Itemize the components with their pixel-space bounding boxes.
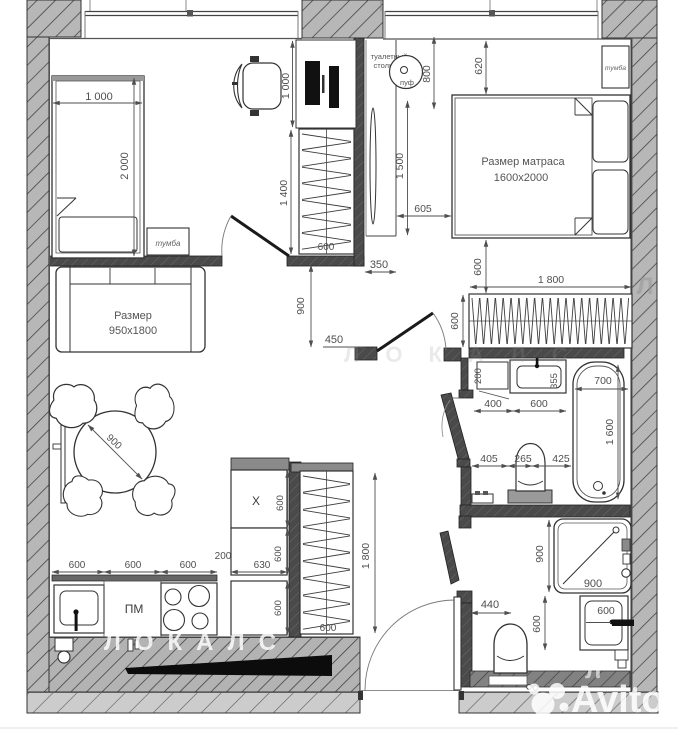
svg-text:X: X	[252, 494, 260, 508]
svg-text:425: 425	[552, 453, 570, 465]
svg-text:1 000: 1 000	[85, 91, 113, 103]
svg-text:620: 620	[473, 57, 485, 75]
svg-text:440: 440	[481, 599, 499, 611]
svg-text:Avito: Avito	[571, 679, 665, 721]
svg-text:1 000: 1 000	[280, 73, 292, 99]
svg-text:1 500: 1 500	[394, 153, 406, 179]
svg-text:600: 600	[449, 312, 461, 330]
svg-text:600: 600	[273, 600, 284, 616]
svg-text:600: 600	[530, 398, 548, 410]
svg-text:600: 600	[320, 623, 337, 634]
svg-text:450: 450	[325, 334, 343, 346]
svg-text:600: 600	[472, 258, 484, 276]
svg-text:1 800: 1 800	[360, 543, 372, 569]
svg-text:405: 405	[480, 453, 498, 465]
svg-text:600: 600	[273, 546, 284, 562]
svg-text:тумба: тумба	[605, 64, 626, 72]
svg-text:900: 900	[295, 297, 307, 315]
svg-text:950x1800: 950x1800	[109, 325, 157, 337]
svg-text:тумба: тумба	[156, 239, 181, 248]
svg-text:1 600: 1 600	[604, 419, 616, 445]
svg-text:1600x2000: 1600x2000	[494, 172, 548, 184]
svg-text:600: 600	[318, 242, 335, 253]
svg-text:900: 900	[534, 545, 546, 563]
svg-text:265: 265	[514, 453, 532, 465]
svg-text:ЛОКАЛС: ЛОКАЛС	[104, 629, 290, 656]
svg-text:600: 600	[275, 495, 286, 511]
svg-text:ПМ: ПМ	[125, 602, 144, 616]
svg-text:2 000: 2 000	[119, 152, 131, 180]
svg-text:600: 600	[531, 615, 543, 633]
svg-text:200: 200	[473, 368, 484, 384]
svg-text:ЛОКАЛС: ЛОКАЛС	[344, 342, 593, 367]
svg-text:630: 630	[254, 560, 271, 571]
svg-text:Размер: Размер	[114, 310, 152, 322]
svg-text:605: 605	[414, 203, 432, 215]
svg-text:600: 600	[597, 605, 615, 617]
svg-text:200: 200	[215, 551, 232, 562]
svg-text:800: 800	[421, 65, 433, 83]
svg-text:1 800: 1 800	[538, 274, 564, 286]
svg-text:Л: Л	[637, 273, 654, 300]
svg-text:700: 700	[594, 375, 612, 387]
svg-text:600: 600	[180, 560, 197, 571]
svg-text:Размер матраса: Размер матраса	[481, 156, 565, 168]
svg-text:350: 350	[370, 259, 388, 271]
svg-text:900: 900	[584, 578, 602, 590]
svg-text:1 400: 1 400	[278, 180, 290, 206]
svg-text:пуф: пуф	[400, 78, 414, 87]
svg-text:355: 355	[549, 373, 560, 389]
svg-text:600: 600	[69, 560, 86, 571]
svg-text:400: 400	[484, 398, 502, 410]
svg-text:600: 600	[125, 560, 142, 571]
